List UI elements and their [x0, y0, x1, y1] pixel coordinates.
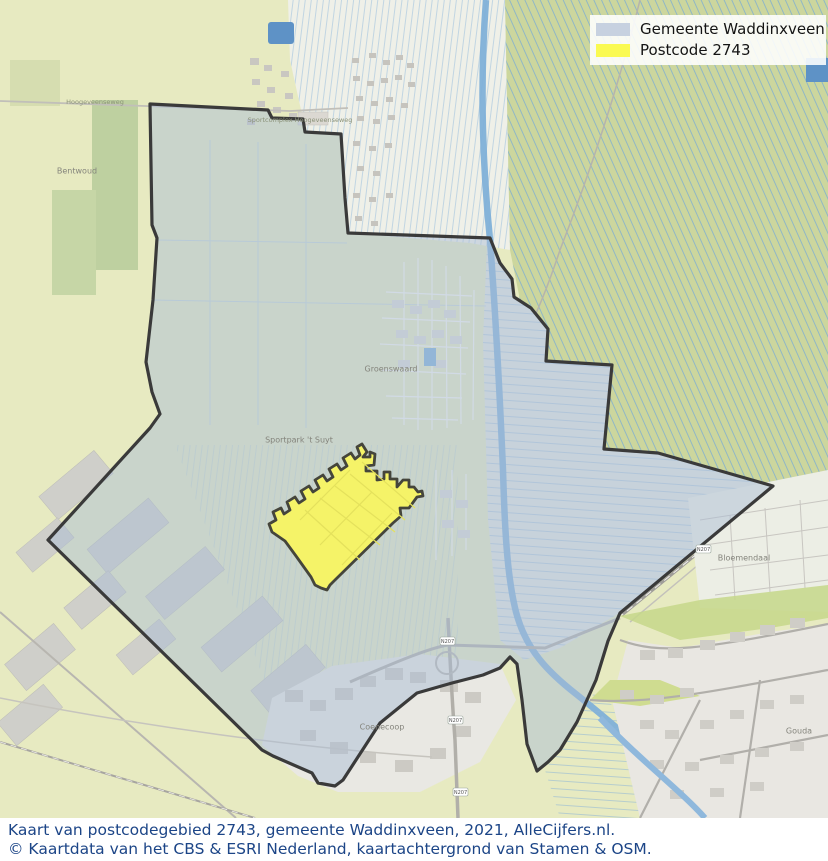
legend-label-gemeente: Gemeente Waddinxveen: [640, 20, 825, 38]
legend-swatch-postcode: [596, 44, 630, 57]
screenshot-root: N207 N207 N207 N207 Bentwoud Sportcomple…: [0, 0, 828, 861]
map-area: N207 N207 N207 N207 Bentwoud Sportcomple…: [0, 0, 828, 818]
legend-swatch-gemeente: [596, 23, 630, 36]
map-legend: Gemeente Waddinxveen Postcode 2743: [590, 15, 826, 65]
pond: [268, 22, 294, 44]
caption: Kaart van postcodegebied 2743, gemeente …: [0, 818, 828, 861]
road-badge: N207: [448, 716, 463, 724]
road-badge: N207: [696, 545, 711, 553]
svg-text:N207: N207: [697, 547, 710, 553]
svg-text:N207: N207: [441, 639, 454, 645]
road-badge: N207: [453, 788, 468, 796]
caption-line-1: Kaart van postcodegebied 2743, gemeente …: [8, 821, 828, 840]
road-badge: N207: [440, 637, 455, 645]
legend-label-postcode: Postcode 2743: [640, 41, 751, 59]
legend-row-gemeente: Gemeente Waddinxveen: [596, 20, 818, 38]
caption-line-2: © Kaartdata van het CBS & ESRI Nederland…: [8, 840, 828, 859]
map-canvas: N207 N207 N207 N207: [0, 0, 828, 818]
svg-text:N207: N207: [449, 718, 462, 724]
svg-text:N207: N207: [454, 790, 467, 796]
legend-row-postcode: Postcode 2743: [596, 41, 818, 59]
